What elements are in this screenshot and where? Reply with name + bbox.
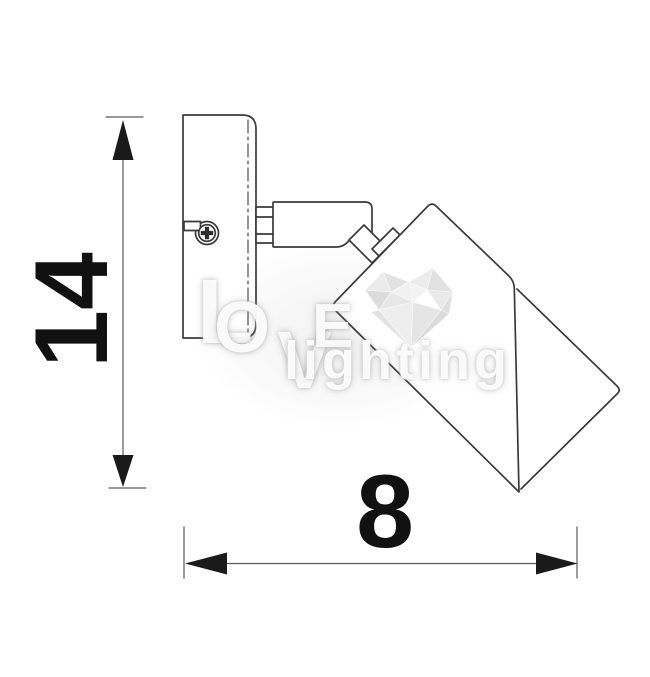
spotlight-dimension-diagram: 14 8 L O V E lighting [0, 0, 650, 677]
watermark-heart-icon [361, 262, 461, 352]
watermark: L O V E lighting [0, 0, 650, 677]
watermark-letter-o: O [214, 292, 270, 364]
